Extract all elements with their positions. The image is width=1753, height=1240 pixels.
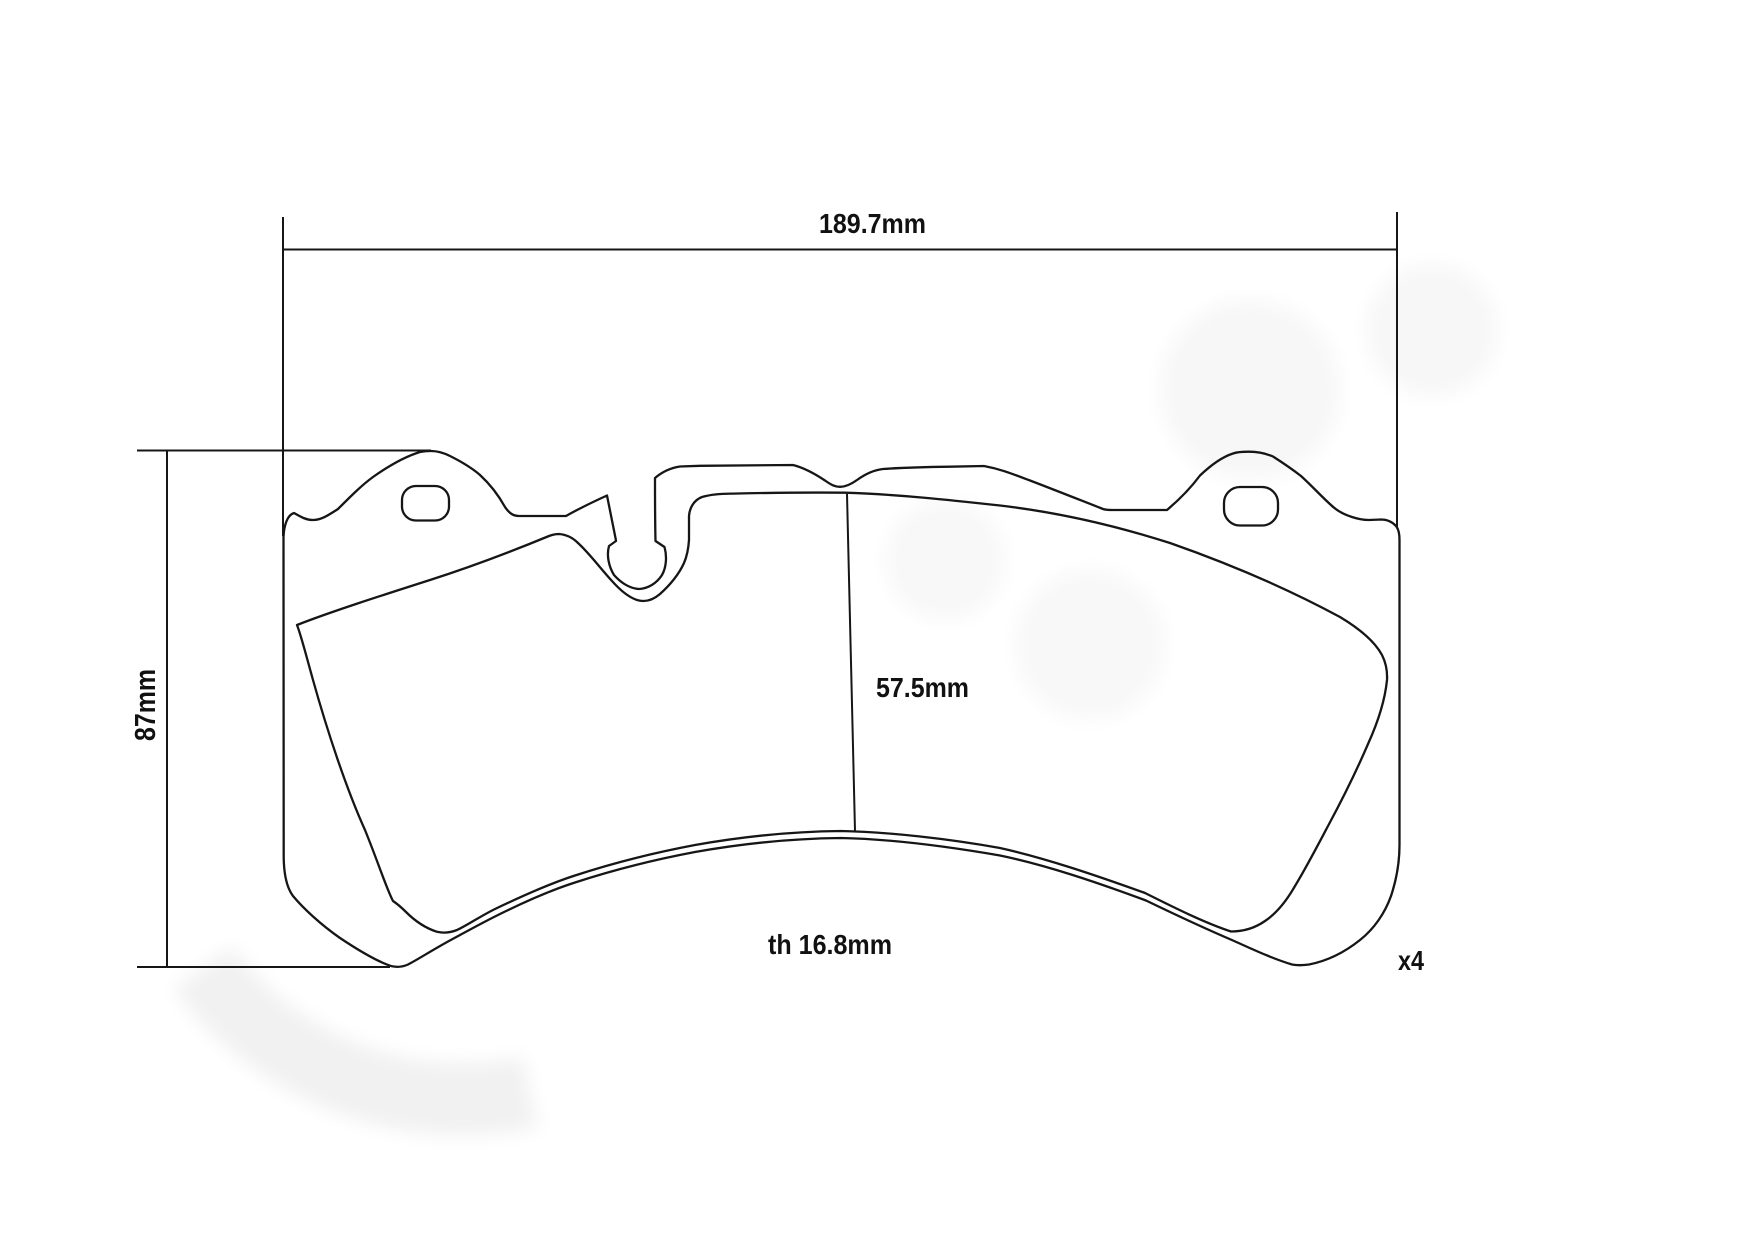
svg-text:57.5mm: 57.5mm	[876, 672, 969, 703]
svg-text:th 16.8mm: th 16.8mm	[768, 929, 892, 960]
svg-text:x4: x4	[1398, 945, 1424, 976]
svg-text:189.7mm: 189.7mm	[819, 208, 926, 239]
svg-text:87mm: 87mm	[130, 669, 162, 741]
